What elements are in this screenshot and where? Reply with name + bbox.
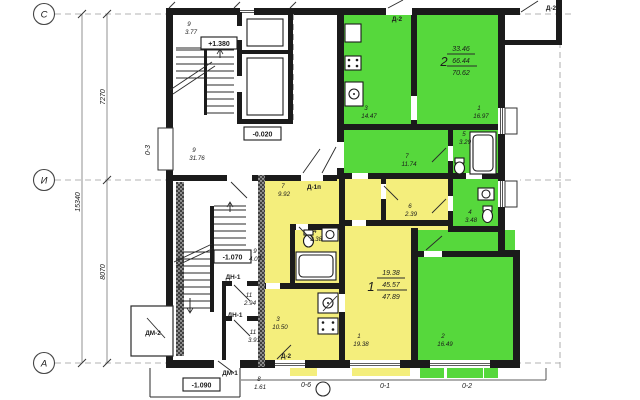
axis-label-top: С bbox=[41, 10, 48, 21]
apt2-hall-number: 7 bbox=[405, 153, 409, 160]
apt2-hall-area: 11.74 bbox=[401, 161, 417, 168]
apt2-kitchen-number: 3 bbox=[364, 105, 368, 112]
door-label-dn1-b: ДН-1 bbox=[228, 312, 243, 319]
room-lobby-a-area: 2.94 bbox=[243, 300, 257, 307]
apt1-room-number: 1 bbox=[357, 333, 360, 340]
apt2-living-area: 33.46 bbox=[452, 46, 470, 53]
apt2-balcony-tab bbox=[447, 367, 483, 378]
apt2-bathroom-number: 5 bbox=[462, 131, 466, 138]
dimension-upper: 7270 bbox=[100, 89, 107, 105]
wall-pilaster bbox=[505, 108, 517, 134]
axis-label-mid: И bbox=[41, 176, 48, 187]
apt2-wc-area: 3.48 bbox=[465, 217, 478, 224]
elevation-stair: +1.380 bbox=[208, 41, 230, 48]
toilet-tank-icon bbox=[304, 230, 313, 235]
floor-plan-page: 15340 7270 8070 С И А bbox=[0, 0, 640, 400]
apt1-kitchen-area: 10.50 bbox=[272, 324, 288, 331]
apt2-total-area: 70.62 bbox=[452, 70, 470, 77]
apt1-hall-area: 9.92 bbox=[278, 191, 291, 198]
axis-col-0-1: 0-1 bbox=[380, 383, 390, 390]
door-label-d2-top: Д-2 bbox=[392, 16, 403, 23]
apt1-bathroom-area: 3.38 bbox=[310, 236, 323, 243]
column-symbol bbox=[316, 382, 330, 396]
apt2-usable-area: 66.44 bbox=[452, 58, 470, 65]
floor-plan-drawing: 15340 7270 8070 С И А bbox=[0, 0, 640, 400]
apt2-room2-number: 2 bbox=[440, 333, 445, 340]
elevation-entrance: -1.090 bbox=[192, 383, 212, 390]
room-vestibule-number: 9 bbox=[253, 248, 257, 255]
apt2-room2-area bbox=[415, 255, 520, 367]
axis-col-0-2: 0-2 bbox=[462, 383, 472, 390]
room-porch-number: 8 bbox=[257, 376, 261, 383]
apt2-balcony-tab bbox=[420, 367, 444, 378]
apt2-room1-area: 16.97 bbox=[473, 113, 489, 120]
axis-label-bottom: А bbox=[40, 359, 47, 370]
toilet-icon bbox=[483, 210, 493, 223]
axis-col-0-6: 0-6 bbox=[301, 382, 311, 389]
room-corridor-number: 9 bbox=[192, 147, 196, 154]
door-label-dm2: ДМ-2 bbox=[145, 330, 161, 337]
wall-pilaster bbox=[158, 128, 173, 170]
room-vestibule-area: 4.07 bbox=[249, 256, 262, 263]
elevation-vestibule: -1.070 bbox=[223, 255, 243, 262]
apt1-number: 1 bbox=[367, 279, 374, 294]
wall-pilaster bbox=[505, 181, 517, 207]
door-label-d2-bottom: Д-2 bbox=[281, 353, 292, 360]
bathtub-icon bbox=[470, 132, 496, 174]
apt1-total-area: 47.89 bbox=[382, 294, 400, 301]
apt2-balcony-tab bbox=[484, 367, 498, 378]
apt2-bathroom-area: 3.29 bbox=[459, 139, 472, 146]
door-label-d2-topright: Д-2 bbox=[546, 5, 557, 12]
toilet-icon bbox=[455, 162, 465, 174]
room-lobby-b-area: 3.91 bbox=[248, 337, 260, 344]
insulated-wall bbox=[176, 182, 184, 356]
apt1-hall-number: 7 bbox=[281, 183, 285, 190]
apt1-closet-area: 2.39 bbox=[404, 211, 418, 218]
dimension-lower: 8070 bbox=[100, 264, 107, 280]
dimension-total: 15340 bbox=[75, 192, 82, 212]
elevation-floor: -0.020 bbox=[253, 132, 273, 139]
apt1-bathroom-number: 4 bbox=[313, 228, 317, 235]
apt2-room1-number: 1 bbox=[477, 105, 480, 112]
washbasin-icon bbox=[322, 228, 338, 241]
apt1-kitchen-number: 3 bbox=[276, 316, 280, 323]
stove-icon bbox=[345, 56, 361, 70]
apt1-balcony-tab bbox=[290, 367, 317, 376]
stove-icon bbox=[318, 318, 338, 334]
door-label-d1p: Д-1п bbox=[307, 184, 321, 191]
apt1-closet-number: 6 bbox=[408, 203, 412, 210]
fridge-icon bbox=[345, 24, 361, 42]
room-lobby-a-number: 11 bbox=[246, 292, 252, 299]
apt2-number: 2 bbox=[439, 54, 448, 69]
apt1-room-area: 19.38 bbox=[353, 341, 369, 348]
room-corridor-area: 31.76 bbox=[189, 155, 205, 162]
apt1-balcony-tab bbox=[352, 367, 410, 376]
room-stair-landing-area: 3.77 bbox=[185, 29, 198, 36]
axis-wall-mark-0-3: 0-3 bbox=[145, 145, 152, 155]
door-label-dm1: ДМ-1 bbox=[222, 370, 238, 377]
axis-row-markers: С И А bbox=[34, 4, 55, 374]
door-label-dn1-a: ДН-1 bbox=[226, 274, 241, 281]
room-porch-area: 1.61 bbox=[254, 384, 266, 391]
room-stair-landing-number: 9 bbox=[187, 21, 191, 28]
room-lobby-b-number: 11 bbox=[250, 329, 256, 336]
bathtub-icon bbox=[296, 252, 336, 280]
apt2-kitchen-area: 14.47 bbox=[361, 113, 377, 120]
apt1-usable-area: 45.57 bbox=[382, 282, 401, 289]
apt1-living-area: 19.38 bbox=[382, 270, 400, 277]
apt2-wc-number: 4 bbox=[468, 209, 472, 216]
apt2-room2-area: 16.49 bbox=[437, 341, 453, 348]
